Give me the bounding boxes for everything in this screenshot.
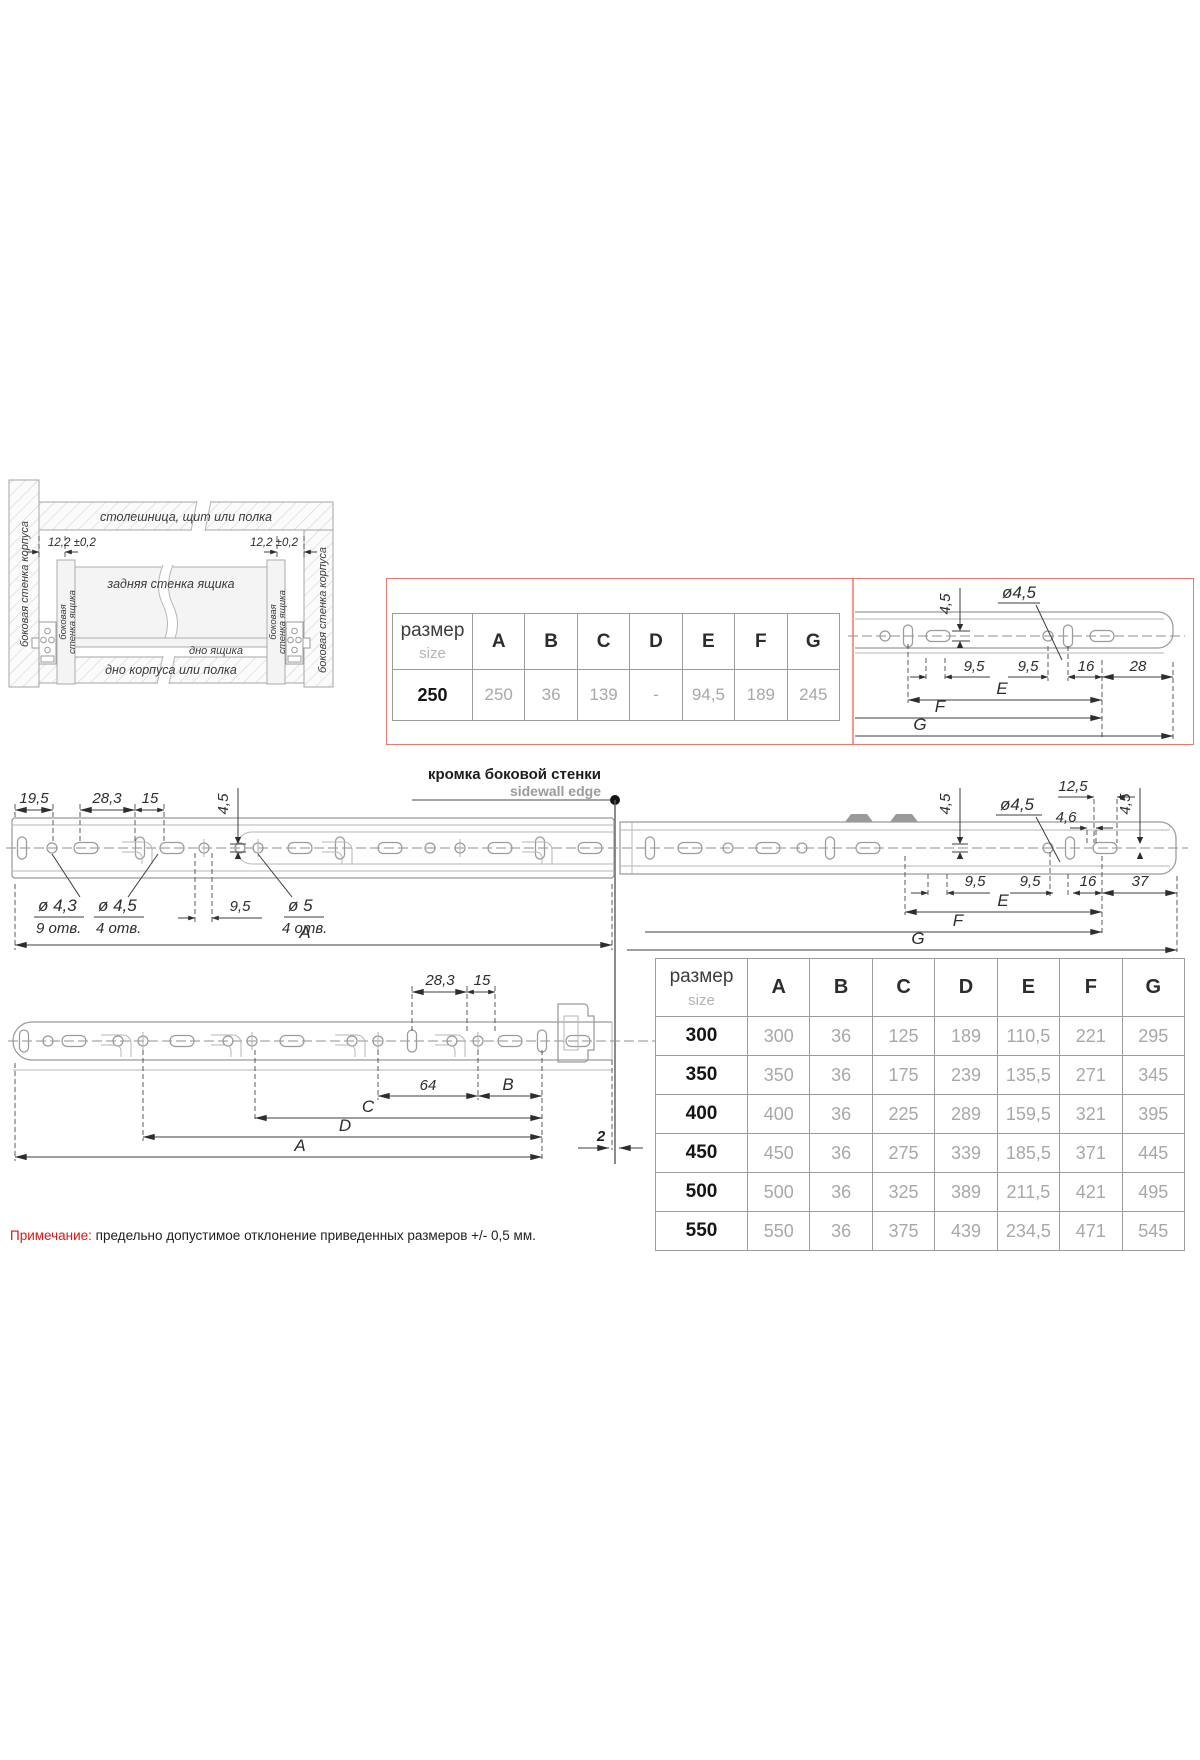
dim-16: 16 xyxy=(1078,658,1095,675)
side-wall-left-label: боковая стенка корпуса xyxy=(19,521,31,647)
dim-4-5-right-a: 4,5 xyxy=(937,793,954,815)
dim-19-5: 19,5 xyxy=(19,790,49,807)
size-table: размер size A B C D E F G 300 300 36 125… xyxy=(655,958,1185,1251)
dim-9-5-a: 9,5 xyxy=(964,658,986,675)
bottom-panel-label: дно корпуса или полка xyxy=(105,663,237,677)
dim-4-5-left: 4,5 xyxy=(215,793,232,815)
dim-G: G xyxy=(913,715,926,734)
dim-dia-4-3: ø 4,3 xyxy=(38,896,77,915)
dim-G-right: G xyxy=(911,929,924,948)
offset-left-label: 12,2 ±0,2 xyxy=(48,537,96,549)
spec-sheet-page: 12,2 ±0,2 12,2 ±0,2 столешница, щит или … xyxy=(0,0,1200,1760)
size-250-table: размер size A B C D E F G 250 250 36 139… xyxy=(392,613,840,721)
sidewall-edge-label-ru: кромка боковой стенки xyxy=(428,766,601,783)
dim-F-right: F xyxy=(953,911,965,930)
dim-4-holes-a: 4 отв. xyxy=(96,920,141,937)
sidewall-edge-callout: кромка боковой стенки sidewall edge xyxy=(412,766,620,1164)
rail-250-drawing xyxy=(848,612,1185,653)
dim-28-3: 28,3 xyxy=(91,790,122,807)
table-header-row: размер size A B C D E F G xyxy=(656,959,1185,1017)
inner-rail-drawing xyxy=(8,1022,728,1070)
dim-4-5-right-b: 4,5 xyxy=(1117,793,1134,815)
dim-16-right: 16 xyxy=(1080,873,1097,890)
dim-37: 37 xyxy=(1132,873,1149,890)
drawer-bottom-label: дно ящика xyxy=(189,645,243,657)
header-size: size xyxy=(688,992,715,1009)
table-row: 250 250 36 139 - 94,5 189 245 xyxy=(393,670,840,721)
dim-64: 64 xyxy=(420,1077,437,1094)
inner-rail-dimensions: 28,3 15 64 B C D A 2 xyxy=(15,972,643,1161)
tolerance-note: Примечание: предельно допустимое отклоне… xyxy=(10,1228,536,1243)
table-row: 400 400 36 225 289 159,5 321 395 xyxy=(656,1095,1185,1134)
drawer-side-right-label-2: стенка ящика xyxy=(277,590,288,654)
dim-E-right: E xyxy=(997,891,1009,910)
dim-2: 2 xyxy=(596,1128,606,1145)
dim-9-5-left: 9,5 xyxy=(230,898,252,915)
dim-4-5-vertical: 4,5 xyxy=(937,593,954,615)
drawer-rail-dimensions: 4,5 ø4,5 4,6 12,5 4,5 9,5 9,5 16 37 E F … xyxy=(627,778,1177,952)
dim-9-holes: 9 отв. xyxy=(36,920,81,937)
dim-12-5: 12,5 xyxy=(1058,778,1088,795)
dim-28: 28 xyxy=(1129,658,1147,675)
rail-250-dimensions: 4,5 ø4,5 9,5 9,5 16 28 E F G xyxy=(855,583,1173,739)
cabinet-cross-section-diagram: 12,2 ±0,2 12,2 ±0,2 столешница, щит или … xyxy=(8,472,334,688)
dim-dia-4-5: ø4,5 xyxy=(1002,583,1037,602)
table-row: 300 300 36 125 189 110,5 221 295 xyxy=(656,1017,1185,1056)
dim-28-3-bottom: 28,3 xyxy=(424,972,455,989)
dim-C: C xyxy=(362,1097,375,1116)
cabinet-rail-dimensions: 19,5 28,3 15 4,5 ø 4,3 9 отв. ø 4,5 4 от… xyxy=(15,788,612,950)
dim-B: B xyxy=(502,1075,513,1094)
dim-9-5-ra: 9,5 xyxy=(965,873,987,890)
header-size: size xyxy=(419,645,446,662)
table-row: 450 450 36 275 339 185,5 371 445 xyxy=(656,1134,1185,1173)
sidewall-edge-label-en: sidewall edge xyxy=(510,783,601,799)
dim-15: 15 xyxy=(142,790,159,807)
dim-4-6: 4,6 xyxy=(1056,809,1078,826)
dim-A-bottom: A xyxy=(293,1136,305,1155)
header-razmer: размер xyxy=(670,966,734,987)
note-text: предельно допустимое отклонение приведен… xyxy=(96,1228,536,1243)
drawer-side-left-label-2: стенка ящика xyxy=(67,590,78,654)
offset-right-label: 12,2 ±0,2 xyxy=(250,537,298,549)
dim-F: F xyxy=(935,697,947,716)
dim-E: E xyxy=(996,679,1008,698)
drawer-rail-drawing xyxy=(620,814,1176,874)
header-razmer: размер xyxy=(401,620,465,641)
table-row: 350 350 36 175 239 135,5 271 345 xyxy=(656,1056,1185,1095)
table-row: 500 500 36 325 389 211,5 421 495 xyxy=(656,1173,1185,1212)
dim-dia-4-5-right: ø4,5 xyxy=(1000,795,1035,814)
dim-dia-5: ø 5 xyxy=(288,896,313,915)
dim-15-bottom: 15 xyxy=(474,972,491,989)
dim-A-left: A xyxy=(298,923,310,942)
cabinet-rail-drawing xyxy=(12,818,614,878)
top-panel-label: столешница, щит или полка xyxy=(100,510,272,524)
rear-bracket-profile xyxy=(558,1004,594,1062)
side-wall-right-label: боковая стенка корпуса xyxy=(317,547,329,673)
table-header-row: размер size A B C D E F G xyxy=(393,614,840,670)
dim-D: D xyxy=(339,1116,351,1135)
dim-dia-4-5-left: ø 4,5 xyxy=(98,896,137,915)
table-row: 550 550 36 375 439 234,5 471 545 xyxy=(656,1212,1185,1251)
dim-9-5-rb: 9,5 xyxy=(1020,873,1042,890)
dim-9-5-b: 9,5 xyxy=(1018,658,1040,675)
back-wall-label: задняя стенка ящика xyxy=(106,577,234,591)
note-label: Примечание: xyxy=(10,1228,92,1243)
